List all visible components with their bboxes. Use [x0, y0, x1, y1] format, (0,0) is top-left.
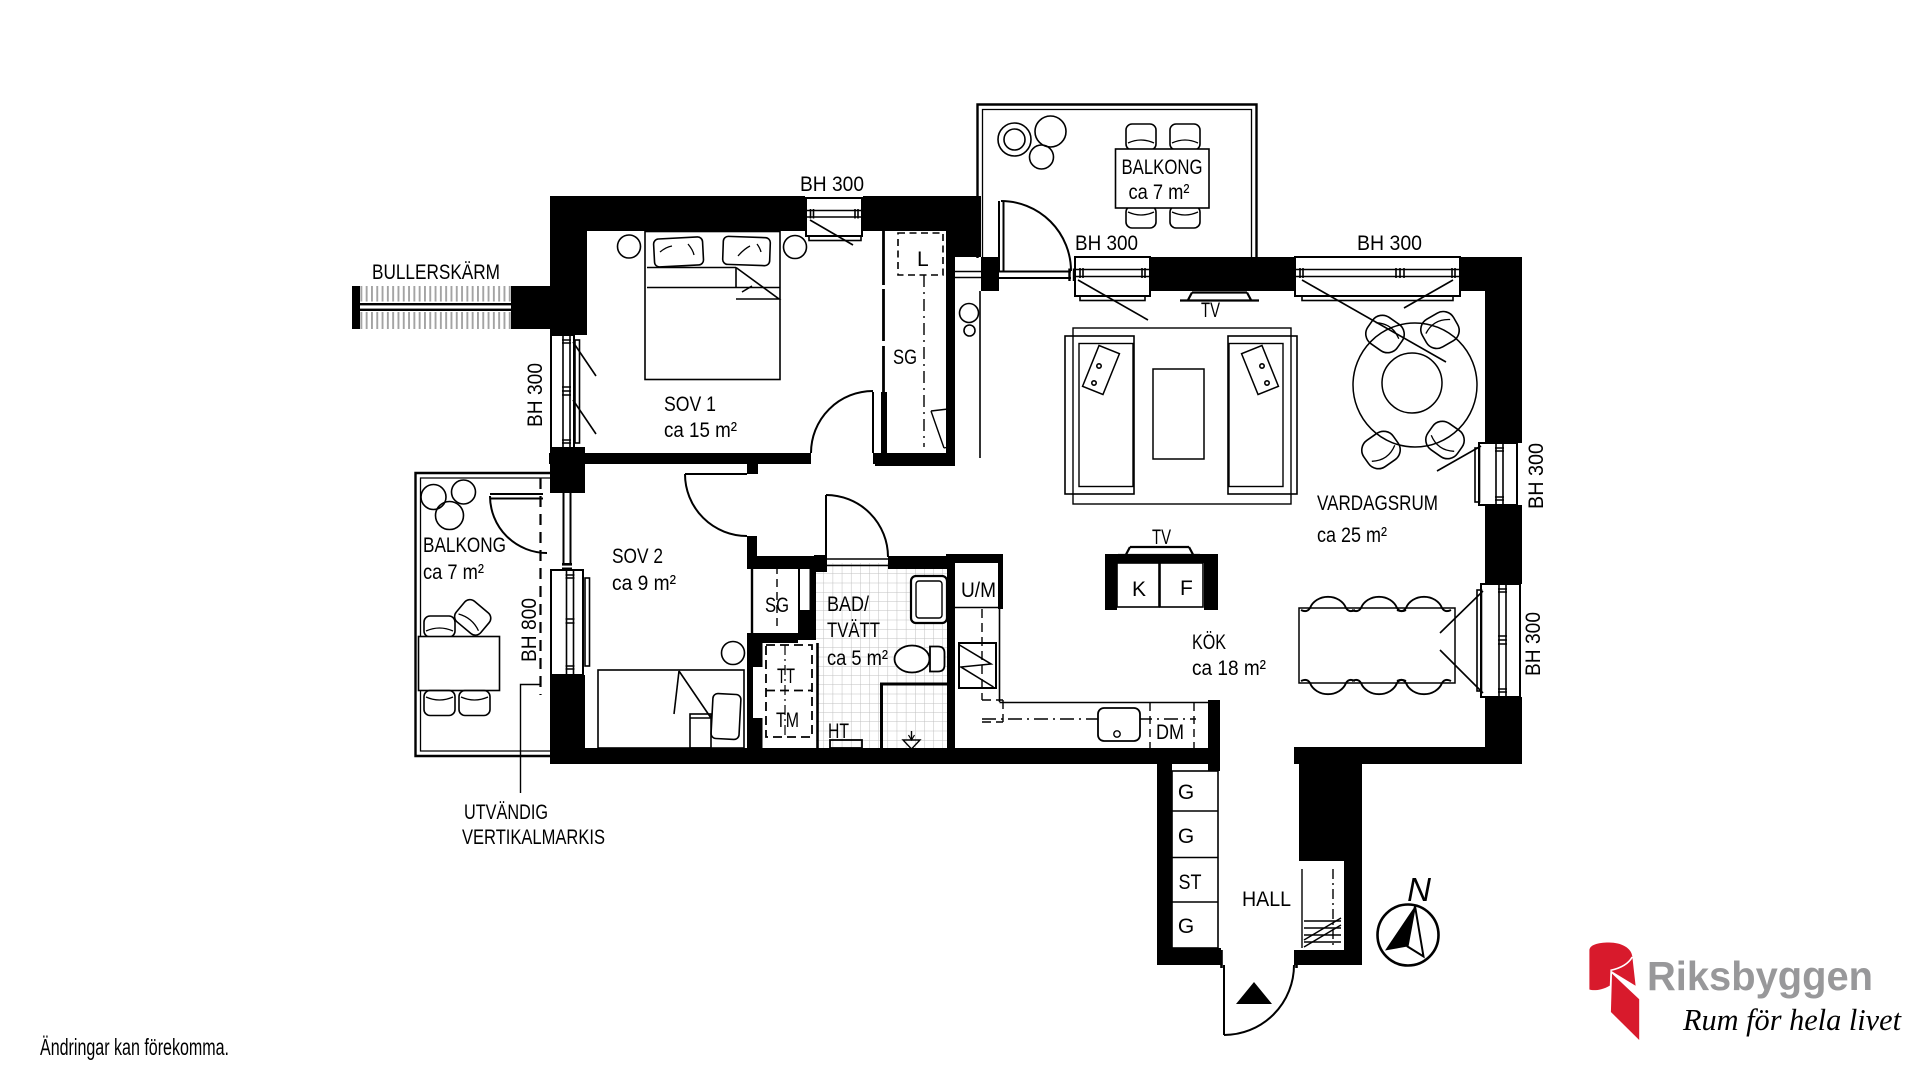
svg-text:HALL: HALL	[1242, 888, 1291, 911]
svg-text:ca 18 m²: ca 18 m²	[1192, 657, 1266, 680]
svg-text:BH 800: BH 800	[518, 598, 541, 662]
svg-text:TVÄTT: TVÄTT	[827, 619, 880, 642]
svg-text:ca 25 m²: ca 25 m²	[1317, 524, 1387, 547]
svg-text:BH 300: BH 300	[1525, 443, 1548, 509]
svg-text:SOV 2: SOV 2	[612, 545, 663, 568]
svg-text:Riksbyggen: Riksbyggen	[1647, 953, 1873, 999]
svg-text:F: F	[1180, 577, 1193, 600]
svg-text:BH 300: BH 300	[1075, 232, 1138, 255]
svg-text:Ändringar kan förekomma.: Ändringar kan förekomma.	[40, 1034, 229, 1060]
svg-text:BH 300: BH 300	[1357, 232, 1422, 255]
svg-text:BH 300: BH 300	[1522, 612, 1545, 676]
svg-text:BALKONG: BALKONG	[423, 534, 506, 557]
svg-text:BH 300: BH 300	[800, 173, 864, 196]
svg-text:G: G	[1178, 825, 1194, 848]
svg-text:ca 15 m²: ca 15 m²	[664, 419, 737, 442]
svg-text:BAD/: BAD/	[827, 593, 869, 616]
svg-text:TM: TM	[776, 709, 799, 732]
svg-text:VARDAGSRUM: VARDAGSRUM	[1317, 492, 1438, 515]
svg-text:BH 300: BH 300	[524, 363, 547, 427]
svg-text:ca 7 m²: ca 7 m²	[423, 561, 484, 584]
svg-text:SOV 1: SOV 1	[664, 393, 716, 416]
svg-text:BULLERSKÄRM: BULLERSKÄRM	[372, 261, 500, 284]
svg-text:TT: TT	[777, 665, 795, 688]
svg-text:G: G	[1178, 781, 1194, 804]
svg-text:BALKONG: BALKONG	[1122, 156, 1203, 179]
svg-text:UTVÄNDIG: UTVÄNDIG	[464, 801, 548, 824]
svg-text:ST: ST	[1179, 871, 1202, 894]
svg-text:VERTIKALMARKIS: VERTIKALMARKIS	[462, 826, 605, 849]
svg-text:L: L	[917, 248, 929, 271]
svg-text:KÖK: KÖK	[1192, 631, 1226, 654]
svg-text:TV: TV	[1152, 526, 1171, 549]
svg-text:Rum för hela livet: Rum för hela livet	[1682, 1002, 1902, 1037]
svg-text:TV: TV	[1201, 299, 1220, 322]
svg-text:DM: DM	[1156, 721, 1184, 744]
svg-text:ca 5 m²: ca 5 m²	[827, 647, 888, 670]
svg-text:N: N	[1407, 871, 1431, 908]
svg-text:HT: HT	[828, 720, 849, 743]
svg-text:SG: SG	[893, 346, 917, 369]
svg-text:G: G	[1178, 915, 1194, 938]
svg-text:ca 7 m²: ca 7 m²	[1129, 181, 1190, 204]
svg-text:ca 9 m²: ca 9 m²	[612, 572, 676, 595]
svg-text:K: K	[1132, 578, 1146, 601]
svg-text:SG: SG	[765, 594, 789, 617]
svg-text:U/M: U/M	[961, 579, 996, 602]
